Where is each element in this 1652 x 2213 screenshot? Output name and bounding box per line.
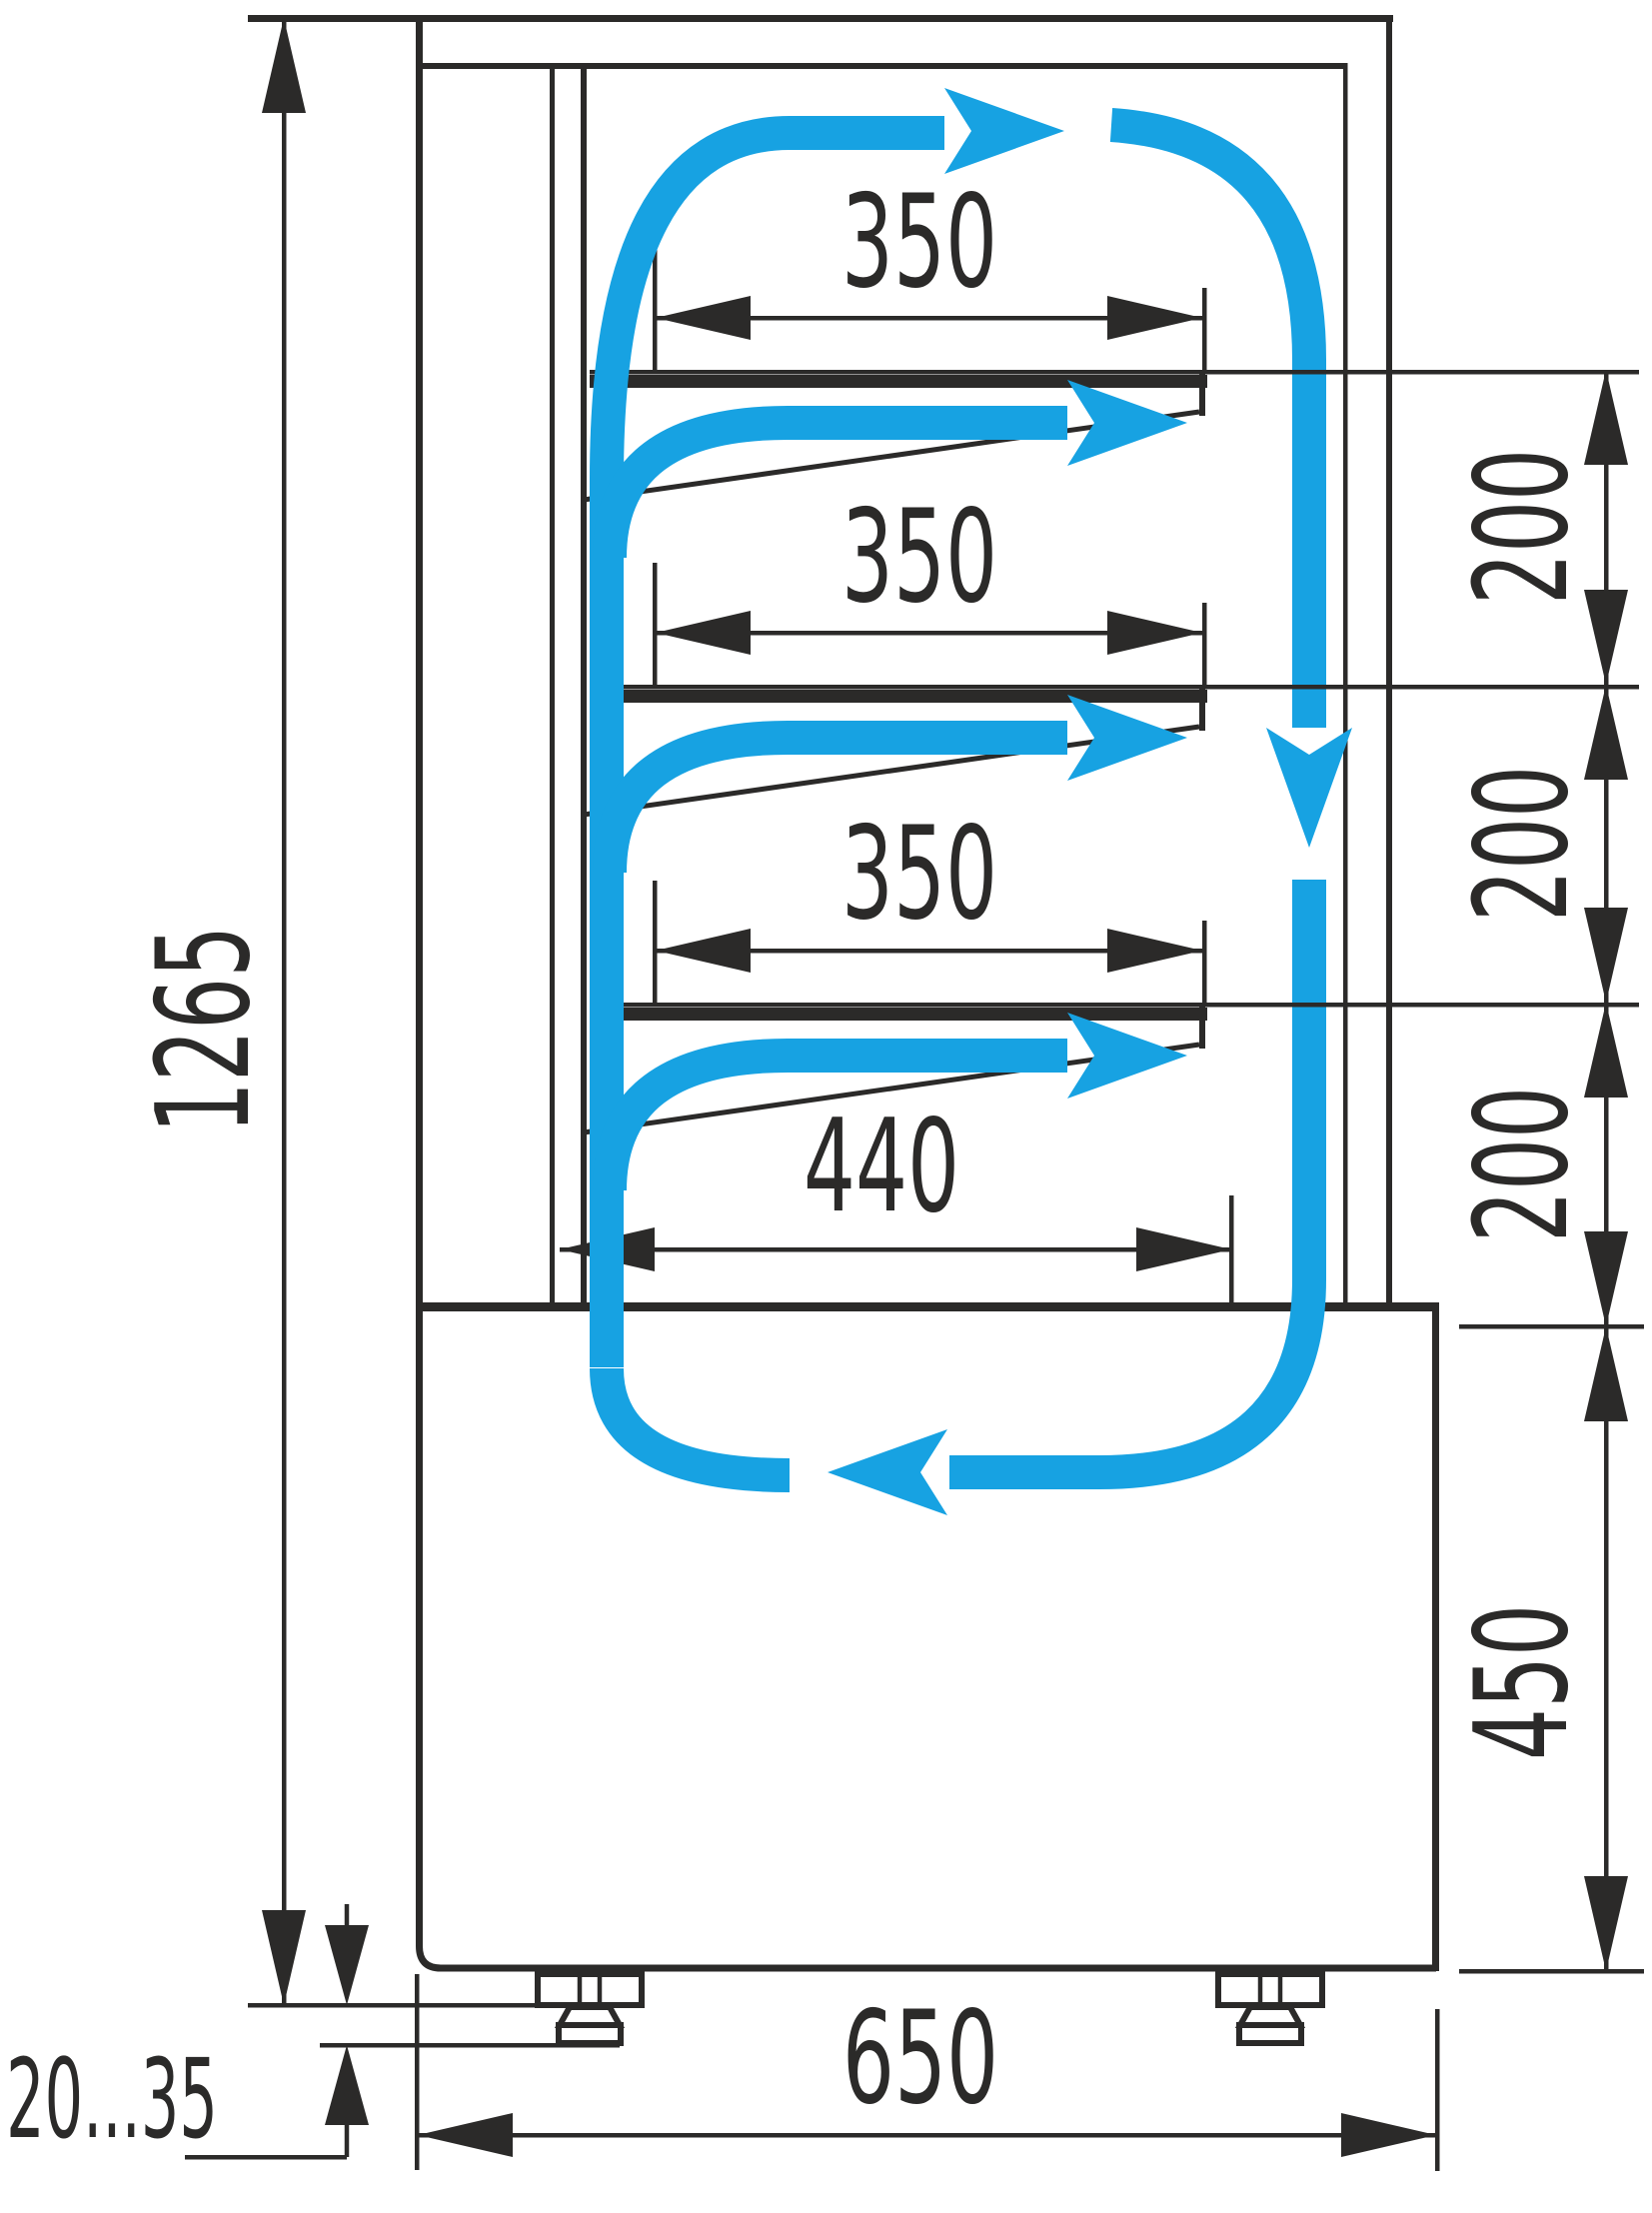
arrow-right-icon [1136, 1227, 1231, 1271]
dim-label-shelf-3-width: 350 [841, 811, 997, 939]
shelf-1-front-lip [1199, 374, 1205, 416]
arrow-left-icon [656, 929, 751, 973]
arrow-down-icon [262, 1910, 306, 2005]
shelf-3-body [590, 1008, 1207, 1021]
arrow-left-icon [656, 296, 751, 340]
dim-label-base-height: 450 [1459, 1604, 1587, 1760]
ext-tick-left [653, 563, 658, 688]
ext-line-shelf-3 [1207, 1003, 1639, 1008]
ext-tick-right [1229, 1195, 1234, 1305]
shelf-3-front-lip [1199, 1007, 1205, 1049]
ext-line-right [1435, 2009, 1440, 2171]
ext-line-bottom-upper [248, 2003, 548, 2008]
dim-line [418, 2133, 1436, 2138]
back-panel-outer [550, 63, 555, 1308]
airflow-arrow-right-icon [1067, 1013, 1187, 1099]
ext-tick-base-top [1459, 1324, 1644, 1329]
airflow-front-downdraft [949, 880, 1309, 1472]
base-right-wall [1432, 1302, 1439, 1971]
back-panel-inner [581, 63, 587, 1308]
dim-line [282, 18, 287, 2005]
dim-label-feet-adjust: 20...35 [6, 2044, 218, 2154]
arrow-up-icon [1584, 1326, 1628, 1421]
ext-tick-right [1202, 921, 1207, 1007]
right-foot [1218, 1974, 1322, 2043]
ext-line-shelf-2 [1207, 685, 1639, 690]
arrow-right-icon [1107, 611, 1202, 655]
dim-label-gap-low: 200 [1459, 1087, 1587, 1242]
arrow-up-icon [262, 18, 306, 113]
shelf-2-front-lip [1199, 689, 1205, 731]
shelf-1-body [590, 375, 1207, 388]
front-glass-outer [1386, 15, 1392, 1306]
arrow-right-icon [1107, 296, 1202, 340]
ext-line-left [415, 1974, 420, 2170]
drawing-sheet: 1265 350 350 350 440 200 200 200 450 650… [0, 0, 1652, 2213]
dim-label-floor-width: 440 [804, 1104, 959, 1231]
arrow-up-icon [325, 2045, 369, 2125]
left-foot [538, 1974, 642, 2043]
airflow-arrow-right-icon [1067, 380, 1187, 466]
arrow-down-icon [1584, 1876, 1628, 1971]
ext-tick-base-bottom [1459, 1969, 1644, 1974]
base-top-line [416, 1302, 1436, 1311]
airflow-arrow-right-icon [944, 88, 1064, 174]
arrow-left-icon [418, 2113, 513, 2157]
dim-label-gap-mid: 200 [1459, 766, 1587, 922]
canopy-bottom-line [420, 63, 1345, 69]
arrow-right-icon [1341, 2113, 1436, 2157]
arrow-left-icon [656, 611, 751, 655]
dim-overall-height [248, 18, 620, 2048]
ext-tick-left [653, 248, 658, 373]
arrow-right-icon [1107, 929, 1202, 973]
right-foot-bracket [1218, 1974, 1322, 2005]
dim-line [560, 1247, 1231, 1252]
arrow-down-icon [1584, 1231, 1628, 1326]
dim-label-shelf-1-width: 350 [841, 179, 997, 307]
right-foot-plate [1239, 2025, 1301, 2043]
left-foot-plate [559, 2025, 621, 2043]
dim-label-depth: 650 [842, 1995, 998, 2123]
dim-label-shelf-2-width: 350 [841, 494, 997, 622]
airflow-arrow-right-icon [1067, 695, 1187, 781]
airflow-arrow-left-icon [827, 1429, 947, 1515]
arrow-up-icon [1584, 1003, 1628, 1098]
arrow-down-icon [325, 1925, 369, 2005]
airflow-branch-shelf-1 [610, 423, 1067, 558]
ext-tick-right [1202, 603, 1207, 689]
arrow-down-icon [1584, 908, 1628, 1003]
shelf-2-body [590, 690, 1207, 703]
ext-line-bottom-lower [320, 2043, 620, 2048]
left-foot-bracket [538, 1974, 642, 2005]
dim-label-gap-top: 200 [1459, 449, 1587, 605]
airflow-arrow-down-icon [1266, 728, 1352, 848]
ext-line-shelf-1 [1207, 370, 1639, 375]
dim-label-overall-height: 1265 [141, 926, 269, 1133]
airflow-return-bend [607, 1368, 790, 1475]
ext-tick-left [653, 881, 658, 1006]
airflow-branch-shelf-2 [610, 738, 1067, 873]
ext-tick-right [1202, 288, 1207, 374]
